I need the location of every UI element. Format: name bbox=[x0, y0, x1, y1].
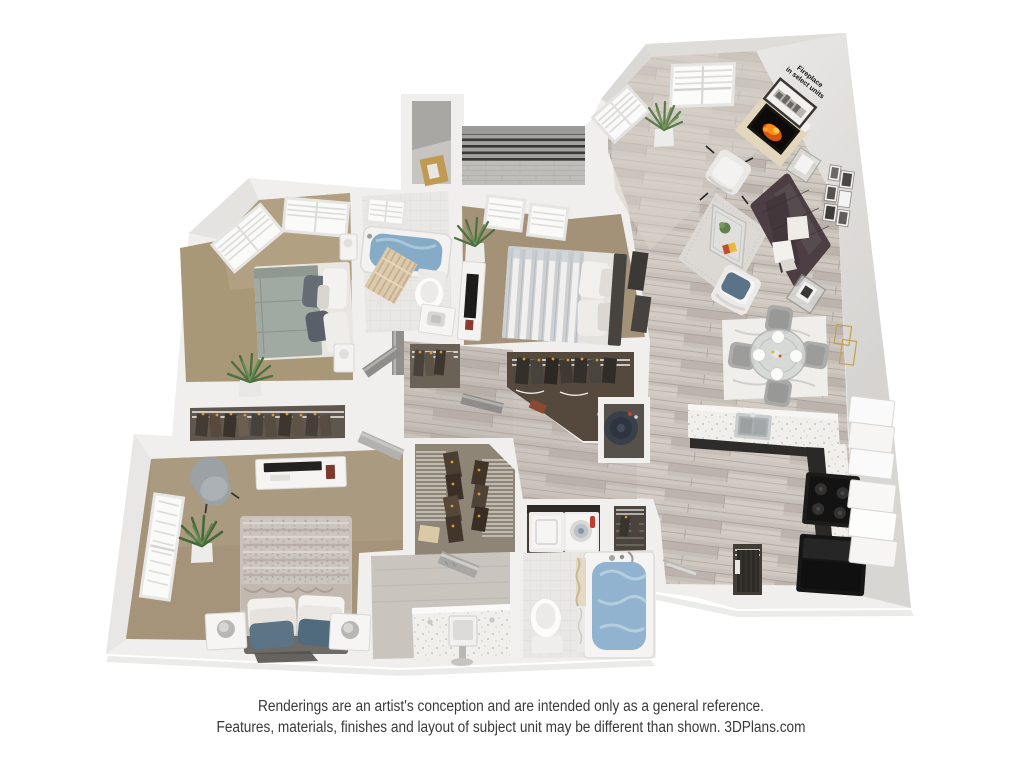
svg-text:Renderings are an artist's con: Renderings are an artist's conception an… bbox=[258, 698, 764, 715]
svg-text:Features, materials, finishes: Features, materials, finishes and layout… bbox=[217, 719, 806, 736]
